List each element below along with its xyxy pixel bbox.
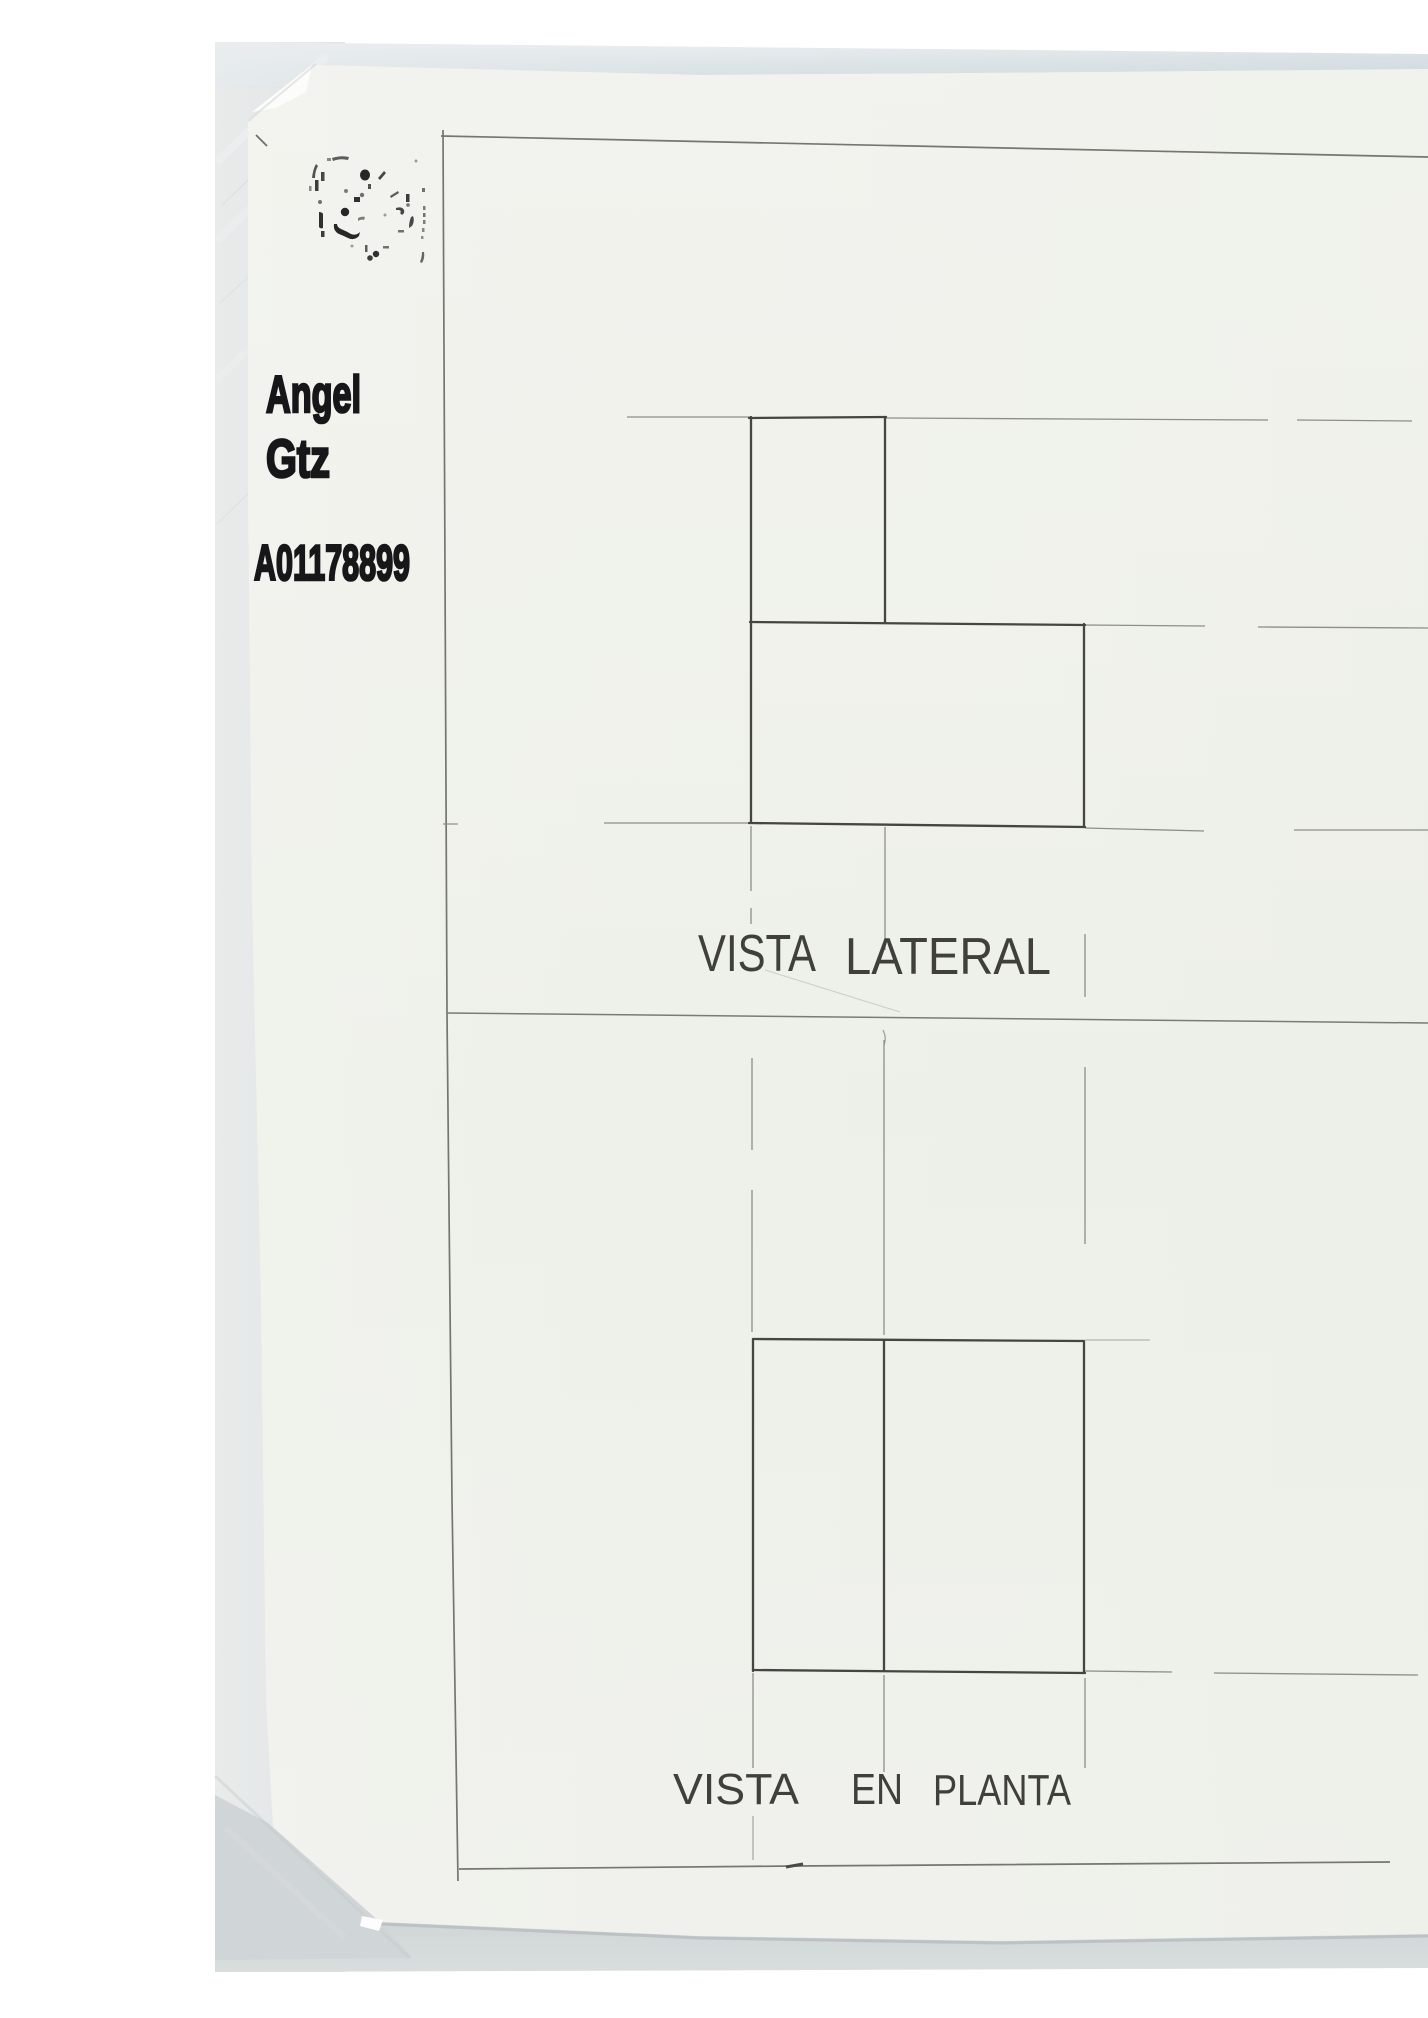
svg-text:A01178899: A01178899	[254, 535, 410, 591]
svg-text:EN: EN	[851, 1765, 903, 1814]
svg-text:LATERAL: LATERAL	[845, 928, 1051, 986]
svg-text:Angel: Angel	[266, 366, 361, 424]
svg-text:VISTA: VISTA	[698, 925, 816, 983]
svg-text:VISTA: VISTA	[673, 1765, 800, 1814]
svg-text:PLANTA: PLANTA	[933, 1766, 1072, 1815]
svg-text:Gtz: Gtz	[266, 429, 330, 489]
